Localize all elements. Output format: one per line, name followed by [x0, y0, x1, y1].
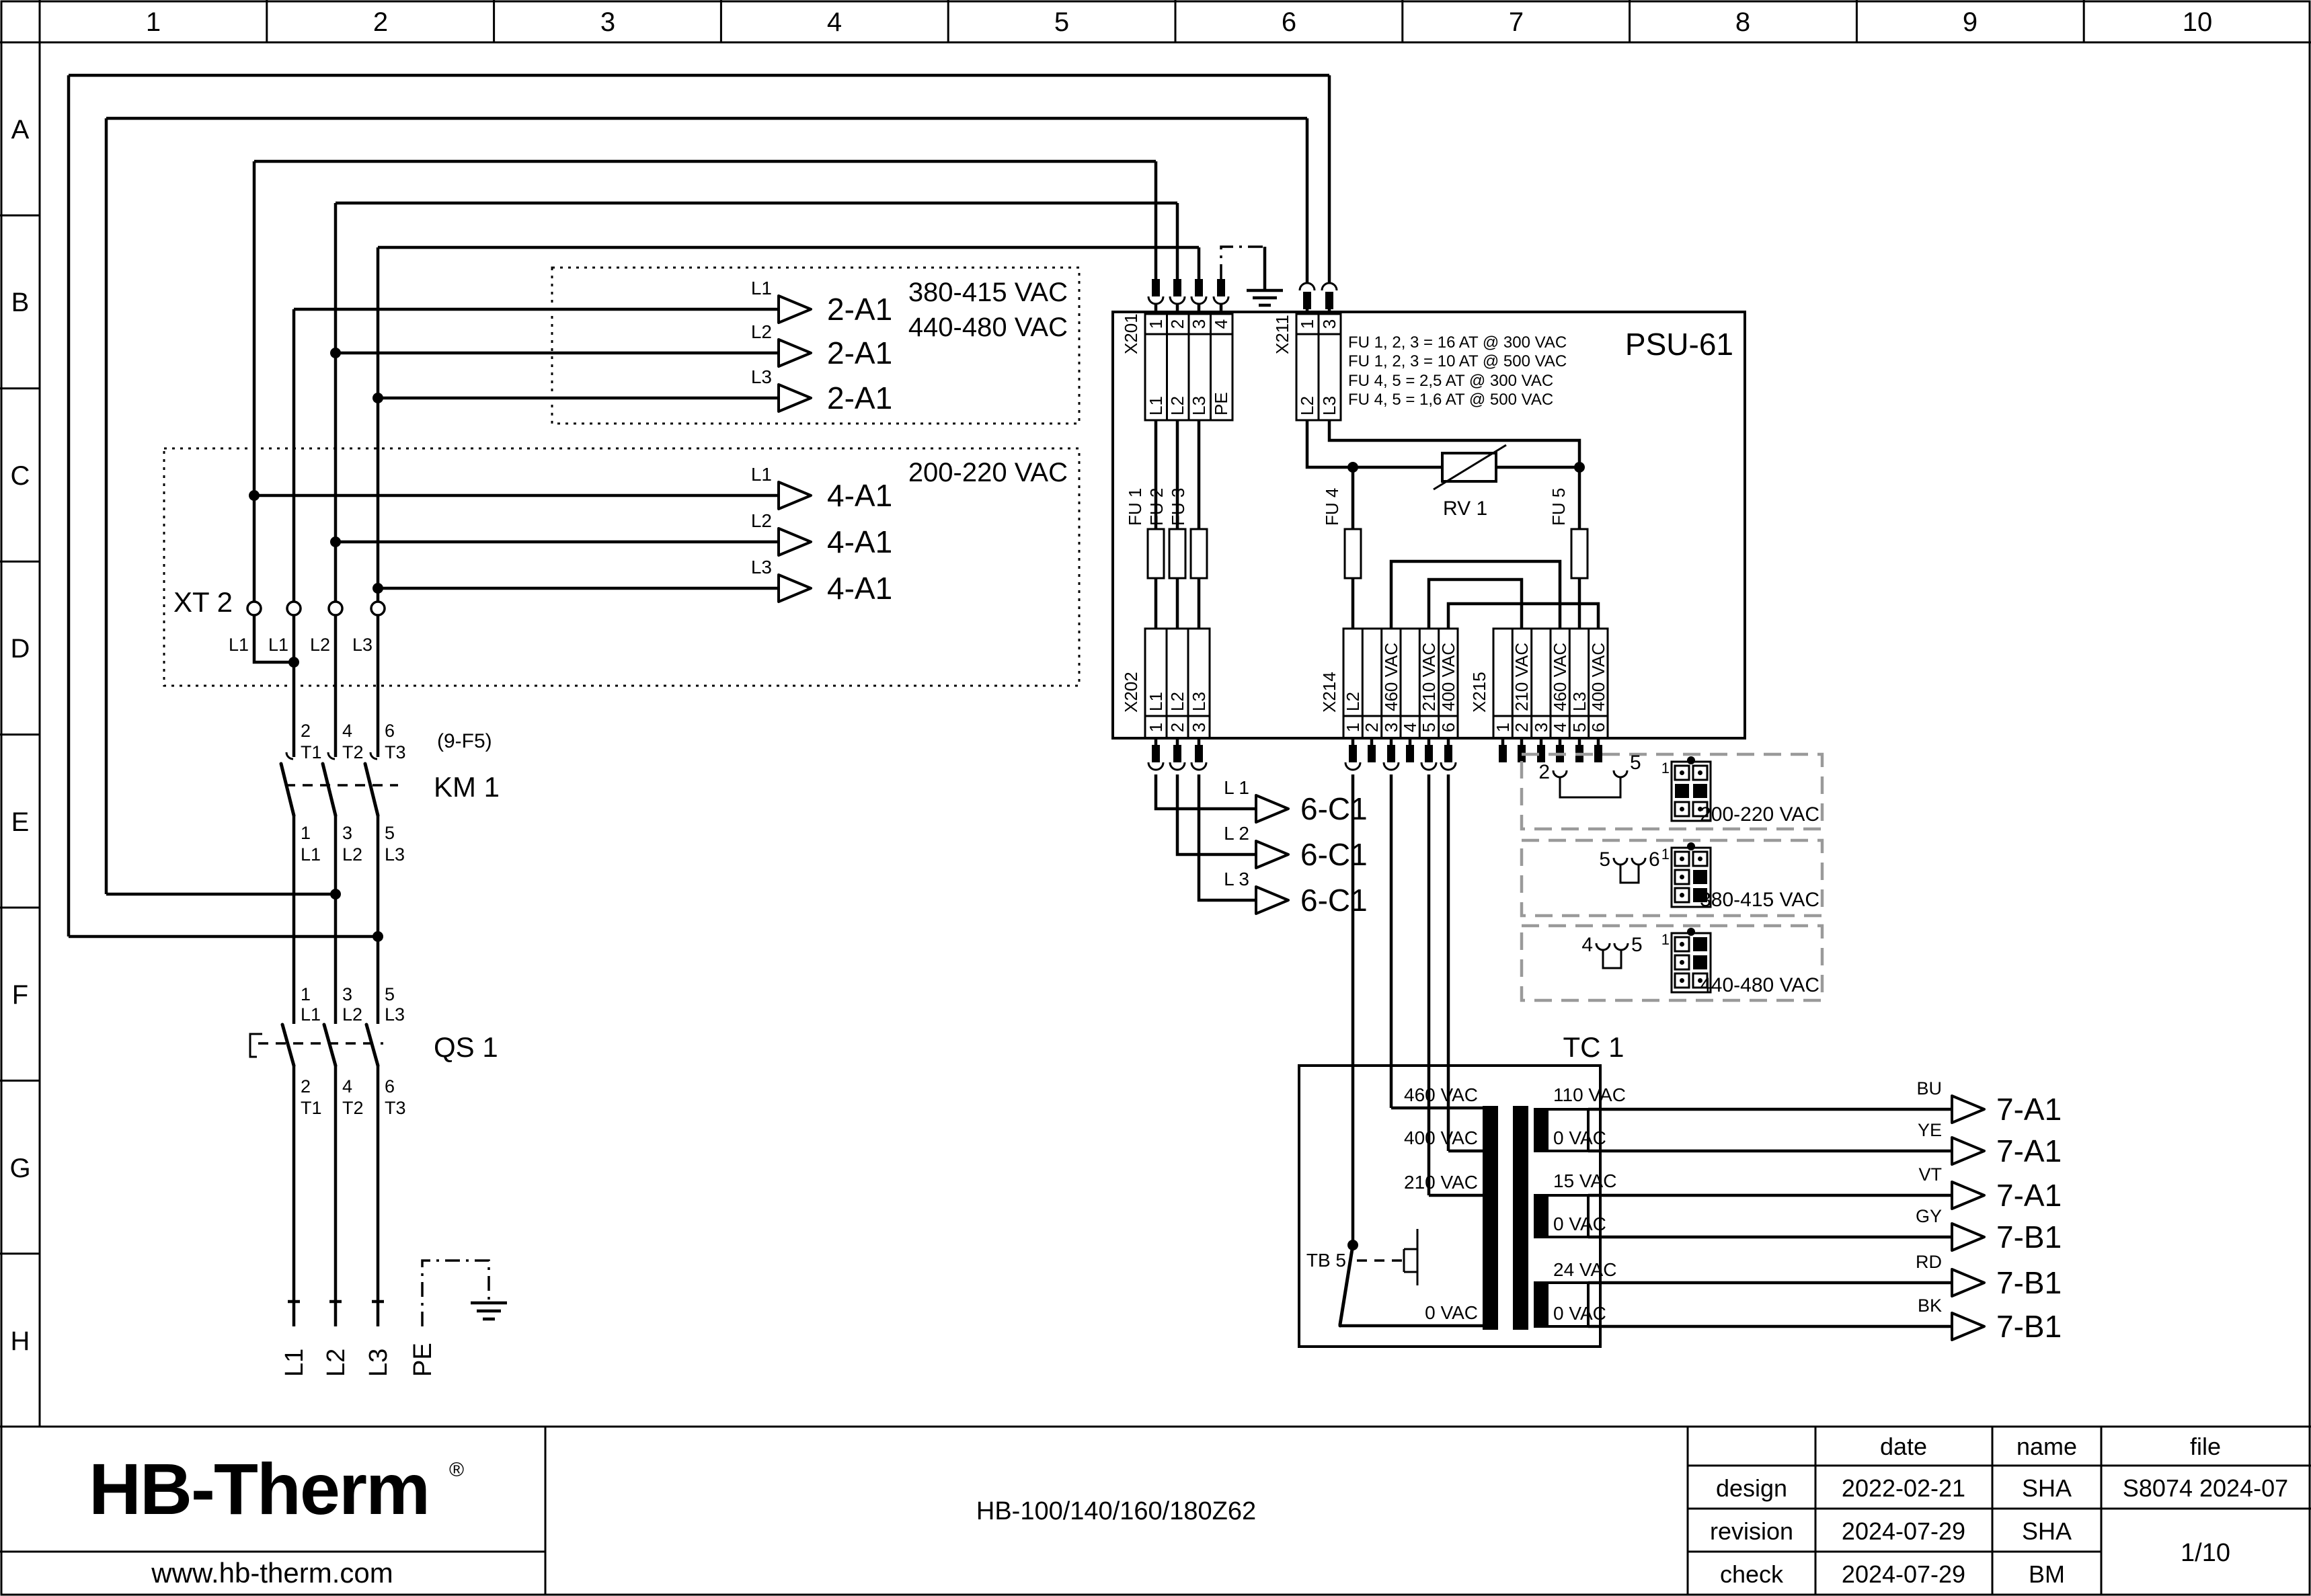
schematic-svg: 1 2 3 4 5 6 7 8 9 10 A B C D E F G H [0, 0, 2311, 1596]
qs1-terminal-num: 4 [342, 1076, 352, 1096]
connector-bump [1687, 842, 1695, 850]
km1-terminal-name: L3 [385, 844, 405, 865]
x202-name: L1 [1146, 692, 1166, 711]
fuse-fu5 [1571, 529, 1588, 578]
x211-label: X211 [1272, 315, 1292, 354]
bottom-pin-symbols [1148, 745, 1602, 770]
xt2-terminal-label: L2 [310, 635, 330, 655]
x201-pin-symbols [1148, 279, 1228, 304]
wire-color-code: VT [1918, 1164, 1942, 1185]
secondary-label: 0 VAC [1553, 1213, 1606, 1234]
km1-terminal-num: 3 [342, 823, 352, 843]
phase-label: L 2 [1224, 823, 1249, 844]
x214-name: L2 [1343, 692, 1363, 711]
row-check-label: check [1720, 1560, 1784, 1588]
x211-name: L2 [1297, 396, 1317, 415]
qs1-switch: 1 3 5 L1 L2 L3 2 4 6 T1 T2 T3 QS 1 [250, 984, 498, 1118]
company-logo: HB-Therm [89, 1448, 429, 1529]
option-440-480: 4 5 1 440-480 VAC [1522, 926, 1822, 1000]
col-header: 3 [600, 7, 615, 37]
jumper-pin: 5 [1631, 934, 1643, 956]
pin-bar [1173, 279, 1181, 296]
x215-name: L3 [1569, 692, 1590, 711]
x215-num: 1 [1493, 723, 1513, 732]
tc1-transformer: TC 1 460 VAC 400 VAC 210 VAC 0 VAC TB 5 … [1299, 1031, 1626, 1347]
voltage-range-label: 440-480 VAC [908, 313, 1068, 342]
fuse-note: FU 1, 2, 3 = 16 AT @ 300 VAC [1348, 333, 1567, 352]
qs1-terminal-name: L2 [342, 1004, 362, 1025]
jumper-pin: 2 [1538, 761, 1550, 783]
tb5-actuator [1404, 1229, 1417, 1285]
pin-filled [1693, 955, 1707, 969]
pin-bar [1303, 292, 1311, 309]
pin-filled [1693, 784, 1707, 798]
fuses-fu45-rv1: FU 4 FU 5 RV 1 [1322, 445, 1588, 578]
x202-outline [1145, 629, 1210, 738]
x202-num: 3 [1189, 723, 1209, 732]
fuse-fu4 [1345, 529, 1361, 578]
km1-terminal-name: T3 [385, 742, 406, 762]
km1-label: KM 1 [434, 771, 500, 803]
primary-tap-label: 400 VAC [1404, 1127, 1478, 1148]
col-header: 8 [1735, 7, 1750, 37]
junction-dot [373, 931, 383, 942]
col-header: 10 [2183, 7, 2213, 37]
schematic-page: 1 2 3 4 5 6 7 8 9 10 A B C D E F G H [0, 0, 2311, 1596]
km1-blades [281, 764, 378, 815]
xt2-terminal-label: L1 [268, 635, 288, 655]
pe-wire [422, 1261, 489, 1326]
target-ref: 7-B1 [1996, 1220, 2062, 1254]
pin-bar [1444, 745, 1452, 762]
jumper-pin: 6 [1649, 848, 1660, 871]
pin-filled [1693, 870, 1707, 884]
qs1-label: QS 1 [434, 1031, 498, 1063]
fuse-fu3 [1191, 529, 1207, 578]
target-ref: 2-A1 [827, 381, 892, 415]
pe-dashdot [1221, 247, 1265, 279]
x215-label: X215 [1469, 672, 1489, 713]
x214-num: 3 [1381, 723, 1401, 732]
km1-terminal-num: 2 [301, 721, 311, 741]
pin-bar [1325, 292, 1333, 309]
jumper [1614, 858, 1645, 883]
junction-dot [373, 393, 383, 403]
x214-name: 460 VAC [1381, 643, 1401, 711]
phase-label: L2 [751, 321, 772, 342]
km1-terminal-name: T2 [342, 742, 364, 762]
option-voltage: 440-480 VAC [1700, 974, 1819, 996]
junction-dot [1574, 462, 1585, 473]
secondary-label: 15 VAC [1553, 1170, 1616, 1191]
tb5-label: TB 5 [1306, 1250, 1346, 1271]
core-bar [1513, 1106, 1528, 1330]
pin-bar [1195, 745, 1203, 762]
qs1-terminal-num: 3 [342, 984, 352, 1004]
row-header: F [12, 980, 28, 1010]
pin-stub [1406, 745, 1414, 762]
qs1-terminal-num: 2 [301, 1076, 311, 1096]
secondary-label: 24 VAC [1553, 1259, 1616, 1280]
pin-filled [1675, 784, 1689, 798]
pin-bar [1173, 745, 1181, 762]
core-bar [1483, 1106, 1498, 1330]
pin-stub [1594, 745, 1602, 762]
connector-bump [1687, 928, 1695, 936]
fuse-fu2 [1169, 529, 1185, 578]
pin-sockets [1300, 283, 1337, 290]
junction-dot [330, 536, 341, 547]
secondary-label: 0 VAC [1553, 1303, 1606, 1324]
arrow-out [1952, 1138, 1984, 1164]
pin-bar [1195, 279, 1203, 296]
fuse-note: FU 4, 5 = 2,5 AT @ 300 VAC [1348, 372, 1553, 390]
primary-tap-label: 210 VAC [1404, 1172, 1478, 1193]
arrow-out [1952, 1269, 1984, 1296]
wire-color-code: YE [1918, 1120, 1942, 1140]
pin-bar [1425, 745, 1433, 762]
pin-bar [1152, 279, 1160, 296]
c6-outputs: L 1 L 2 L 3 6-C1 6-C1 6-C1 [1224, 777, 1368, 918]
junction-dot [330, 348, 341, 358]
secondary-label: 110 VAC [1553, 1084, 1626, 1105]
pin-stub [1368, 745, 1376, 762]
x214-num: 5 [1419, 723, 1439, 732]
pe-ground-symbol [471, 1303, 507, 1319]
secondary-output-wires [1588, 1109, 1952, 1326]
psu-label: PSU-61 [1625, 327, 1733, 362]
row-header: G [9, 1154, 30, 1183]
qs1-blades [282, 1025, 378, 1066]
x202-name: L2 [1167, 692, 1187, 711]
registered-mark: ® [449, 1459, 464, 1481]
jumper [1553, 770, 1627, 797]
connector-bump [1687, 756, 1695, 764]
option-voltage: 200-220 VAC [1700, 803, 1819, 826]
row-header: B [11, 288, 30, 317]
junction-dot [1347, 462, 1358, 473]
x202-cells [1145, 629, 1210, 738]
xt2-label: XT 2 [173, 586, 233, 618]
terminal-block-x202: X202 L1 L2 L3 1 2 3 [1121, 629, 1210, 738]
row-header: D [11, 634, 30, 664]
fuses-fu123: FU 1 FU 2 FU 3 [1125, 488, 1207, 578]
col-header: 7 [1509, 7, 1524, 37]
x215-num: 4 [1550, 723, 1570, 732]
wire-color-code: BK [1918, 1295, 1942, 1316]
qs1-handle [250, 1034, 262, 1057]
secondary-outputs: BU YE VT GY RD BK 7-A1 7-A1 7-A1 7-B1 7-… [1916, 1078, 2062, 1344]
pin-sockets [1148, 762, 1456, 770]
pin-stub [1499, 745, 1507, 762]
xt2-terminal [247, 602, 261, 615]
junction-dot [249, 490, 260, 501]
secondary-label: 0 VAC [1553, 1127, 1606, 1148]
target-ref: 4-A1 [827, 524, 892, 559]
arrow-2a1-l3 [779, 385, 811, 411]
x215-num: 5 [1569, 723, 1590, 732]
target-ref: 4-A1 [827, 478, 892, 513]
target-ref: 7-A1 [1996, 1133, 2062, 1168]
target-ref: 7-B1 [1996, 1265, 2062, 1300]
design-date: 2022-02-21 [1842, 1474, 1965, 1502]
phase-label: L1 [751, 464, 772, 485]
winding-core-side [1535, 1283, 1549, 1326]
pin-bar [1217, 279, 1225, 296]
arrow-out [1952, 1182, 1984, 1209]
jumper-pin: 5 [1630, 752, 1641, 774]
x211-pin-symbols [1300, 283, 1337, 309]
connector-pin1-label: 1 [1661, 760, 1670, 776]
voltage-range-label: 200-220 VAC [908, 458, 1068, 487]
target-ref: 6-C1 [1300, 791, 1368, 826]
x214-num: 1 [1343, 723, 1363, 732]
feed-box-380-480: L1 L2 L3 2-A1 2-A1 2-A1 380-415 VAC 440-… [552, 268, 1079, 424]
fuse-label: FU 5 [1549, 488, 1569, 526]
col-date-header: date [1880, 1433, 1927, 1460]
terminal-block-x201: X201 1 2 3 4 L1 L2 L3 PE [1121, 313, 1232, 420]
col-header: 6 [1282, 7, 1296, 37]
row-header: H [11, 1326, 30, 1356]
wire-color-code: RD [1916, 1252, 1942, 1272]
x201-name: PE [1211, 392, 1231, 415]
x215-name: 460 VAC [1550, 643, 1570, 711]
phase-label: L 1 [1224, 777, 1249, 798]
x214-name: 210 VAC [1419, 643, 1439, 711]
arrow-4a1-l2 [779, 528, 811, 555]
jumper-pin: 4 [1581, 934, 1593, 956]
arrow-out [1952, 1313, 1984, 1340]
column-headers: 1 2 3 4 5 6 7 8 9 10 [146, 7, 2212, 37]
km1-ref: (9-F5) [437, 730, 492, 752]
jumper-pin: 5 [1599, 848, 1610, 871]
revision-date: 2024-07-29 [1842, 1517, 1965, 1545]
arrow-4a1-l1 [779, 482, 811, 509]
file-number: S8074 2024-07 [2123, 1474, 2288, 1502]
xt2-terminal [371, 602, 385, 615]
pin-bar [1387, 745, 1395, 762]
tb5-thermal-contact: TB 5 [1306, 1229, 1417, 1326]
col-name-header: name [2016, 1433, 2077, 1460]
jumper [1596, 943, 1628, 968]
mains-phase-label: L1 [280, 1349, 309, 1377]
secondary-windings: 110 VAC 0 VAC 15 VAC 0 VAC 24 VAC 0 VAC [1535, 1084, 1626, 1326]
target-ref: 2-A1 [827, 335, 892, 370]
x201-name: L1 [1146, 396, 1166, 415]
company-url: www.hb-therm.com [151, 1557, 393, 1589]
xt2-terminal [329, 602, 342, 615]
km1-terminal-name: L1 [301, 844, 321, 865]
junction-dot [330, 889, 341, 900]
x215-num: 2 [1512, 723, 1532, 732]
fuse-notes: FU 1, 2, 3 = 16 AT @ 300 VAC FU 1, 2, 3 … [1348, 333, 1567, 409]
pin-filled [1693, 937, 1707, 951]
fuse-fu1 [1148, 529, 1164, 578]
model-title: HB-100/140/160/180Z62 [976, 1497, 1256, 1525]
x215-num: 3 [1531, 723, 1551, 732]
x215-name: 400 VAC [1588, 643, 1608, 711]
junction-dot [373, 583, 383, 594]
fuse-label: FU 3 [1168, 488, 1188, 526]
terminal-block-x214: X214 L2 460 VAC 210 VAC 400 VAC 1 2 3 4 … [1319, 629, 1458, 738]
target-ref: 2-A1 [827, 292, 892, 327]
x211-num: 3 [1319, 319, 1339, 329]
qs1-terminal-name: L3 [385, 1004, 405, 1025]
connector-pin1-label: 1 [1661, 931, 1670, 948]
x201-num: 1 [1146, 319, 1166, 329]
col-header: 1 [146, 7, 161, 37]
voltage-option-boxes: 2 5 1 200-220 VAC 5 6 1 [1522, 752, 1822, 1000]
pin-bar [1152, 745, 1160, 762]
x202-name: L3 [1189, 692, 1209, 711]
km1-terminal-num: 4 [342, 721, 352, 741]
xt2-terminal [287, 602, 301, 615]
target-ref: 6-C1 [1300, 883, 1368, 918]
x214-num: 4 [1400, 723, 1420, 732]
x215-name: 210 VAC [1512, 643, 1532, 711]
terminal-block-x211: X211 1 3 L2 L3 [1272, 314, 1341, 420]
check-name: BM [2029, 1560, 2065, 1588]
option-voltage: 380-415 VAC [1700, 889, 1819, 911]
fuse-label: FU 2 [1146, 488, 1167, 526]
rv1-label: RV 1 [1443, 497, 1487, 520]
fuse-label: FU 1 [1125, 488, 1145, 526]
col-header: 9 [1963, 7, 1977, 37]
x214-name: 400 VAC [1438, 643, 1458, 711]
mains-phase-label: PE [409, 1343, 437, 1377]
x211-name: L3 [1319, 396, 1339, 415]
xt2-terminal-label: L1 [229, 635, 249, 655]
target-ref: 6-C1 [1300, 837, 1368, 872]
row-header: C [11, 461, 30, 491]
fuse-label: FU 4 [1322, 488, 1342, 526]
target-ref: 7-A1 [1996, 1092, 2062, 1127]
x202-label: X202 [1121, 672, 1141, 713]
psu-box: PSU-61 X201 1 2 3 4 L1 L2 L3 PE X211 1 3… [1113, 247, 1745, 770]
title-block: HB-Therm ® www.hb-therm.com HB-100/140/1… [0, 1427, 2311, 1595]
x211-num: 1 [1297, 319, 1317, 329]
page-number: 1/10 [2181, 1539, 2230, 1567]
row-header: A [11, 115, 30, 145]
voltage-range-label: 380-415 VAC [908, 278, 1068, 307]
junction-dot [288, 657, 299, 668]
x201-name: L3 [1189, 396, 1209, 415]
ground-symbol [1247, 247, 1283, 305]
arrow-4a1-l3 [779, 575, 811, 602]
x201-name: L2 [1167, 396, 1187, 415]
col-file-header: file [2190, 1433, 2221, 1460]
arrow-6c1-l3 [1256, 887, 1288, 914]
fuse-note: FU 1, 2, 3 = 10 AT @ 500 VAC [1348, 352, 1567, 370]
power-wires [69, 75, 1952, 1326]
revision-name: SHA [2022, 1517, 2072, 1545]
x214-num: 2 [1362, 723, 1382, 732]
x202-num: 2 [1167, 723, 1187, 732]
col-header: 5 [1054, 7, 1069, 37]
qs1-terminal-num: 1 [301, 984, 311, 1004]
km1-terminal-name: L2 [342, 844, 362, 865]
wire-color-code: BU [1916, 1078, 1942, 1099]
winding-core-side [1535, 1109, 1549, 1151]
phase-label: L3 [751, 366, 772, 387]
phase-label: L1 [751, 278, 772, 298]
primary-tap-label: 460 VAC [1404, 1084, 1478, 1105]
row-header: E [11, 807, 30, 837]
design-name: SHA [2022, 1474, 2072, 1502]
qs1-terminal-name: T3 [385, 1098, 406, 1118]
phase-label: L2 [751, 510, 772, 531]
phase-label: L 3 [1224, 869, 1249, 889]
x201-label: X201 [1121, 313, 1141, 354]
row-revision-label: revision [1710, 1517, 1793, 1545]
x201-num: 4 [1211, 319, 1231, 329]
connector-pin1-label: 1 [1661, 846, 1670, 863]
target-ref: 7-A1 [1996, 1178, 2062, 1213]
mains-phase-label: L2 [322, 1349, 350, 1377]
arrow-out [1952, 1224, 1984, 1250]
pin-sockets [1148, 296, 1228, 304]
phase-label: L3 [751, 557, 772, 577]
arrow-2a1-l2 [779, 340, 811, 366]
option-380-415: 5 6 1 380-415 VAC [1522, 840, 1822, 916]
qs1-terminal-num: 6 [385, 1076, 395, 1096]
km1-terminal-num: 5 [385, 823, 395, 843]
x201-num: 3 [1189, 319, 1209, 329]
x215-num: 6 [1588, 723, 1608, 732]
x214-label: X214 [1319, 672, 1339, 713]
qs1-terminal-name: T2 [342, 1098, 364, 1118]
wire-color-code: GY [1916, 1206, 1942, 1226]
pin-bar [1349, 745, 1357, 762]
arrow-6c1-l1 [1256, 795, 1288, 822]
km1-terminal-name: T1 [301, 742, 322, 762]
arrow-out [1952, 1096, 1984, 1123]
mains-entry: L1 L2 L3 PE [280, 1261, 507, 1377]
km1-contactor: 2 4 6 T1 T2 T3 1 3 5 L1 L2 L3 (9-F5) KM … [281, 721, 500, 865]
qs1-terminal-name: T1 [301, 1098, 322, 1118]
fuse-note: FU 4, 5 = 1,6 AT @ 500 VAC [1348, 391, 1553, 409]
target-ref: 7-B1 [1996, 1309, 2062, 1344]
row-design-label: design [1716, 1474, 1787, 1502]
tc1-label: TC 1 [1563, 1031, 1624, 1063]
xt2-box: XT 2 200-220 VAC L1 L2 L3 4-A1 4-A1 4-A1… [164, 448, 1079, 686]
primary-tap-label: 0 VAC [1425, 1302, 1478, 1323]
x214-num: 6 [1438, 723, 1458, 732]
qs1-terminal-name: L1 [301, 1004, 321, 1025]
check-date: 2024-07-29 [1842, 1560, 1965, 1588]
winding-core-side [1535, 1195, 1549, 1237]
km1-terminal-num: 1 [301, 823, 311, 843]
mains-phase-label: L3 [364, 1349, 393, 1377]
arrow-6c1-l2 [1256, 841, 1288, 868]
xt2-terminal-label: L3 [352, 635, 373, 655]
target-ref: 4-A1 [827, 571, 892, 606]
arrow-2a1-l1 [779, 296, 811, 323]
col-header: 4 [827, 7, 842, 37]
pe-ground-top [1221, 247, 1283, 305]
x202-num: 1 [1146, 723, 1166, 732]
qs1-terminal-num: 5 [385, 984, 395, 1004]
option-200-220: 2 5 1 200-220 VAC [1522, 752, 1822, 829]
terminal-block-x215: X215 210 VAC 460 VAC L3 400 VAC 1 2 3 4 … [1469, 629, 1608, 738]
col-header: 2 [373, 7, 388, 37]
x201-num: 2 [1167, 319, 1187, 329]
km1-terminal-num: 6 [385, 721, 395, 741]
